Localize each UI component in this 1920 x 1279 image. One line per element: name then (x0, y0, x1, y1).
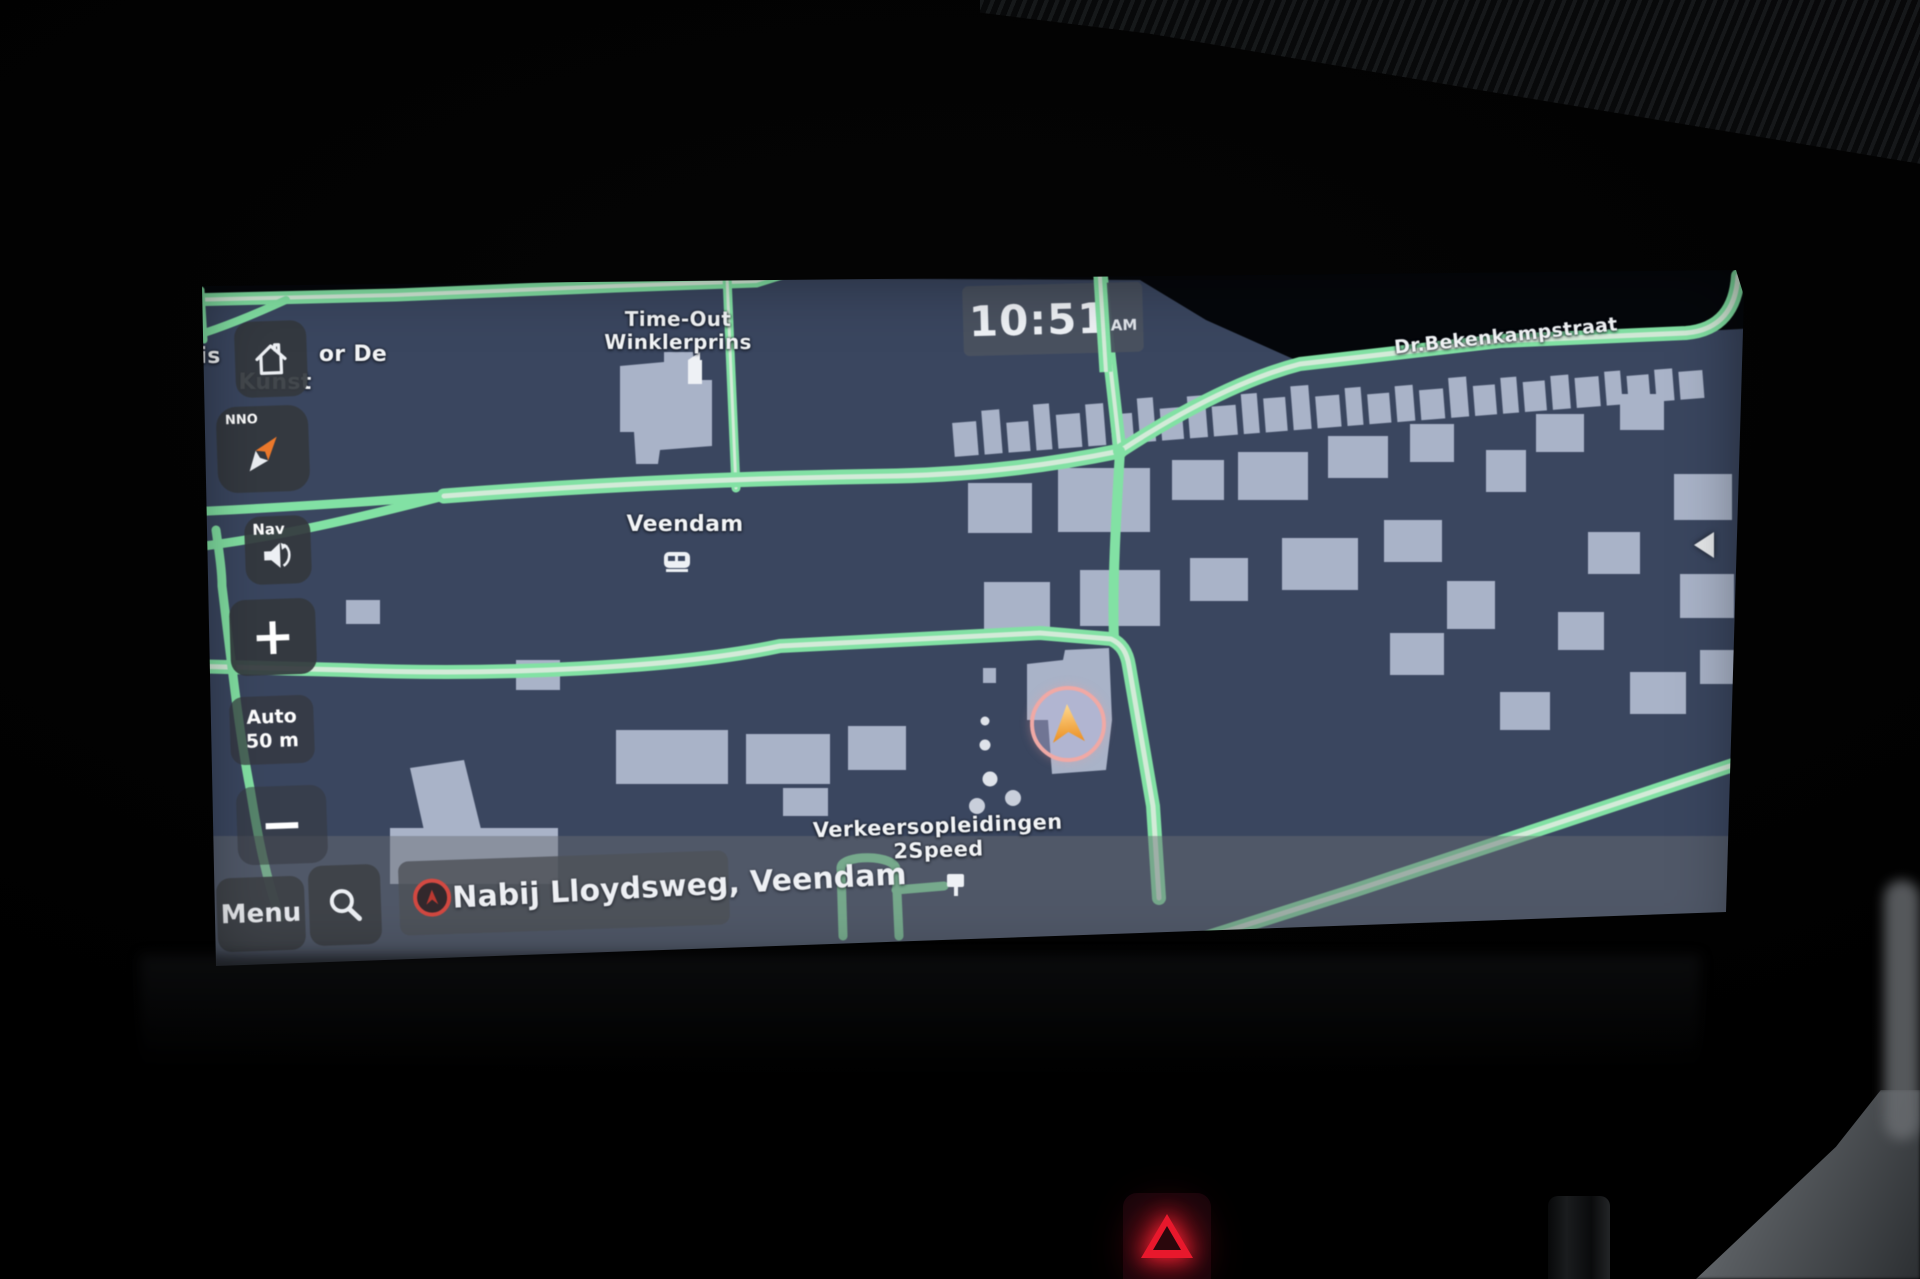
speaker-muted-icon (259, 538, 298, 573)
door-trim (1884, 880, 1920, 1140)
clock-meridiem: AM (1111, 316, 1138, 335)
search-icon (324, 884, 365, 925)
poi-label-timeout[interactable]: Time-OutWinklerprins (568, 308, 788, 354)
hazard-light-button[interactable] (1123, 1193, 1211, 1279)
dashboard-trim (140, 955, 1700, 1105)
scale-value: 50 m (246, 729, 300, 755)
split-view-arrow-icon[interactable] (1694, 532, 1714, 558)
menu-button[interactable]: Menu (216, 875, 307, 952)
nav-volume-mute-button[interactable]: Nav (244, 515, 312, 585)
scale-mode: Auto (246, 705, 297, 730)
home-poi-button[interactable] (234, 320, 309, 398)
zoom-out-button[interactable]: − (236, 784, 329, 865)
clock-time: 10:51 (968, 293, 1108, 346)
hazard-triangle-icon (1141, 1214, 1193, 1258)
search-button[interactable] (308, 864, 383, 946)
compass-button[interactable]: NNO (216, 404, 311, 493)
nav-compass-icon (412, 878, 451, 917)
poi-kunst-fragment-right: or De (308, 342, 398, 367)
clock-badge: 10:51 AM (962, 282, 1144, 357)
console-silver-trim (1640, 1090, 1920, 1279)
compass-needle-icon (227, 418, 300, 491)
map-buildings (346, 352, 1738, 884)
home-icon (248, 336, 294, 382)
nav-mute-label: Nav (252, 520, 285, 539)
speaker-grille (980, 0, 1920, 210)
zoom-in-button[interactable]: + (229, 598, 318, 677)
car-heading-arrow-icon (1044, 700, 1092, 748)
infotainment-screen: Time-OutWinklerprins Veendam Dr.Bekenkam… (196, 268, 1748, 974)
poi-kunst-fragment-left: is (190, 344, 230, 369)
city-label: Veendam (620, 512, 750, 537)
dashboard-photo: Time-OutWinklerprins Veendam Dr.Bekenkam… (0, 0, 1920, 1279)
air-vent (1548, 1196, 1610, 1279)
navigation-map-view[interactable]: Time-OutWinklerprins Veendam Dr.Bekenkam… (196, 268, 1748, 974)
train-station-icon (662, 550, 694, 578)
map-scale-indicator[interactable]: Auto 50 m (229, 695, 315, 766)
